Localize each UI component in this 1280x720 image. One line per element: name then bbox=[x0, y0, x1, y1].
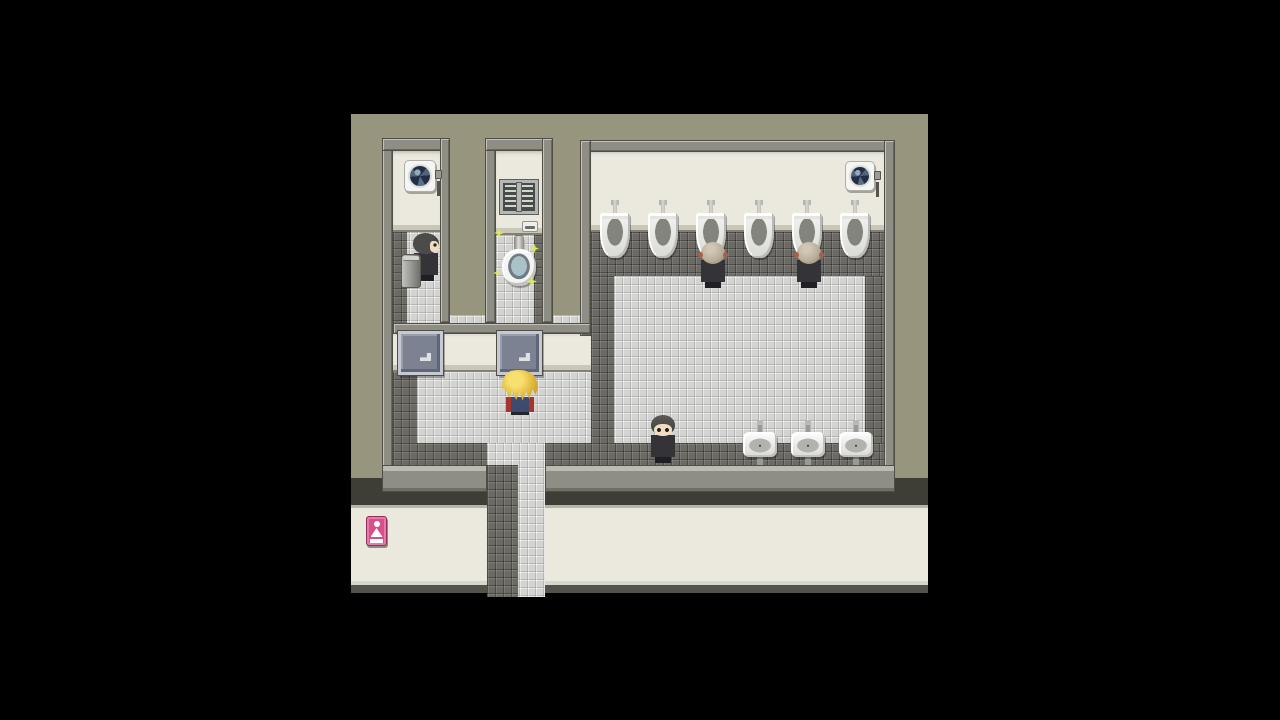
sink-2 bbox=[791, 425, 825, 465]
npc-main-room[interactable] bbox=[648, 415, 678, 463]
toilet-paper-holder bbox=[522, 221, 538, 232]
hallway-darkness bbox=[351, 593, 928, 597]
stall-door-1[interactable] bbox=[398, 331, 443, 375]
mainroom-floor-left-border bbox=[591, 276, 614, 465]
trash-can bbox=[401, 254, 421, 288]
stall2-wall-left bbox=[485, 138, 496, 323]
stall2-wall-right bbox=[542, 138, 553, 323]
npc-at-urinal-right[interactable] bbox=[794, 240, 824, 288]
stall2-window bbox=[500, 180, 538, 214]
mainroom-wall-top bbox=[580, 140, 895, 152]
outer-wall-left bbox=[382, 138, 393, 492]
sink-1 bbox=[743, 425, 777, 465]
stall1-wall-right bbox=[440, 138, 450, 323]
stall-door-2[interactable] bbox=[497, 331, 542, 375]
mainroom-wall-left bbox=[580, 140, 591, 336]
urinal-4 bbox=[744, 200, 774, 258]
game-viewport[interactable] bbox=[351, 114, 928, 597]
corridor-right-border bbox=[545, 443, 591, 465]
hand-dryer-right bbox=[845, 161, 875, 191]
entry-floor-bottom-border bbox=[417, 443, 487, 465]
player-character[interactable] bbox=[502, 370, 538, 416]
urinal-2 bbox=[648, 200, 678, 258]
sink-3 bbox=[839, 425, 873, 465]
hand-dryer-left bbox=[404, 160, 436, 192]
npc-at-urinal-left[interactable] bbox=[698, 240, 728, 288]
bottom-wall-right bbox=[545, 465, 895, 492]
women-restroom-sign[interactable] bbox=[366, 516, 387, 546]
hallway-wall bbox=[351, 505, 928, 585]
corridor-floor-dark bbox=[487, 465, 518, 597]
hallway-floor-edge bbox=[351, 585, 928, 593]
bottom-wall-left bbox=[382, 465, 487, 492]
urinal-1 bbox=[600, 200, 630, 258]
screen: { "scene": { "viewport": {"x": 351, "y":… bbox=[0, 0, 1280, 720]
mainroom-wall-right bbox=[884, 140, 895, 492]
urinal-6 bbox=[840, 200, 870, 258]
